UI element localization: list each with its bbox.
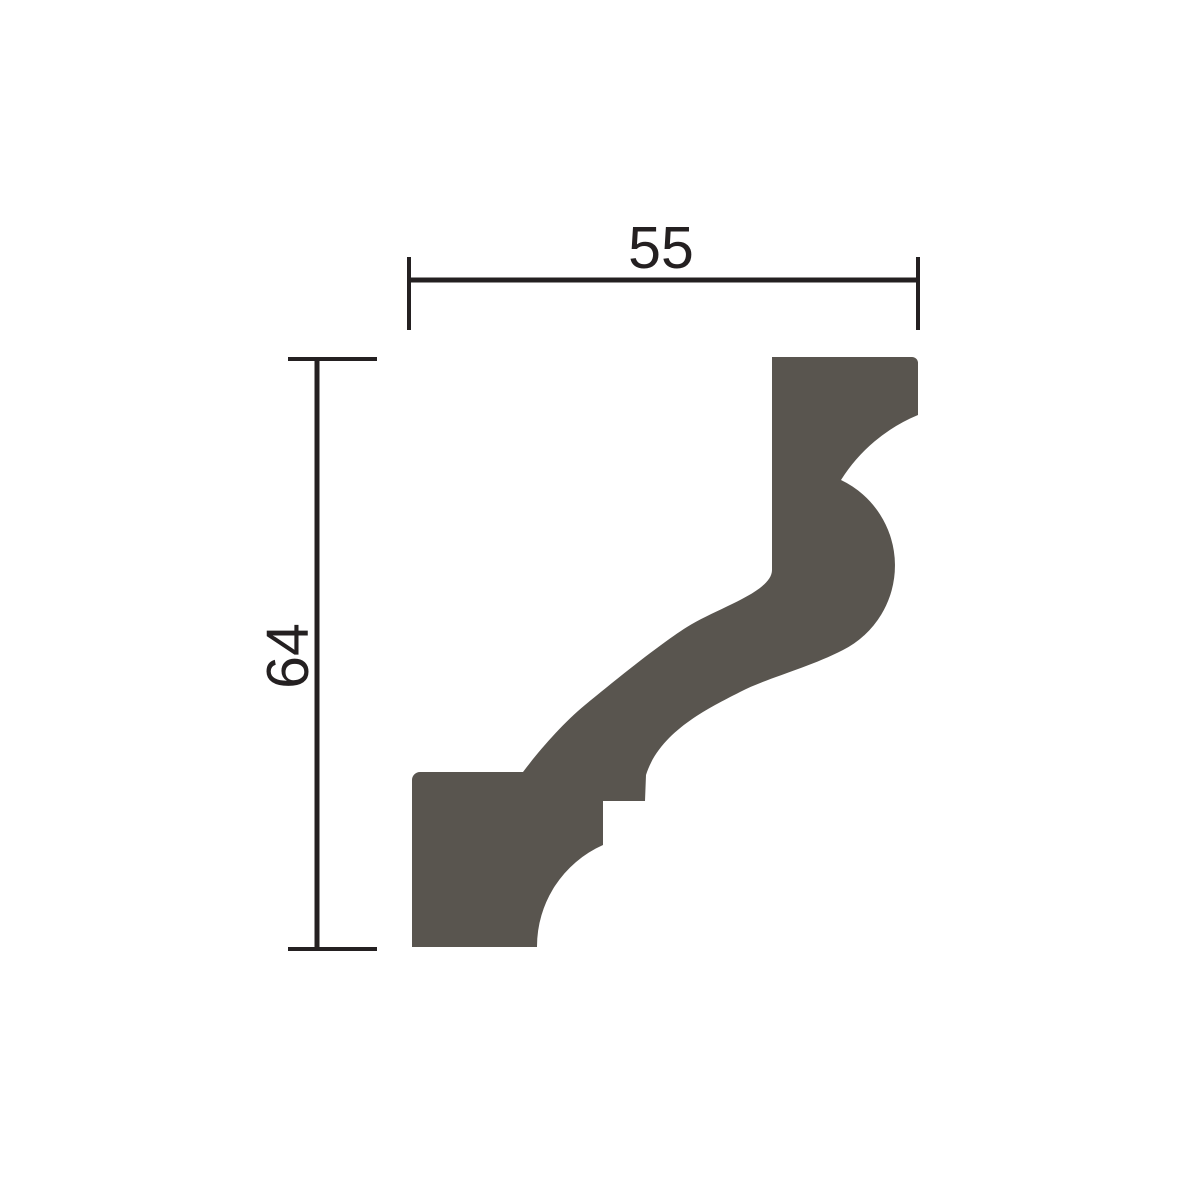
width-dimension-label: 55	[628, 215, 694, 281]
molding-diagram: 55 64	[0, 0, 1182, 1182]
width-dimension: 55	[409, 215, 918, 330]
height-dimension: 64	[255, 359, 377, 949]
molding-profile-shape	[412, 357, 918, 947]
diagram-canvas: 55 64	[0, 0, 1182, 1182]
height-dimension-label: 64	[255, 623, 321, 689]
